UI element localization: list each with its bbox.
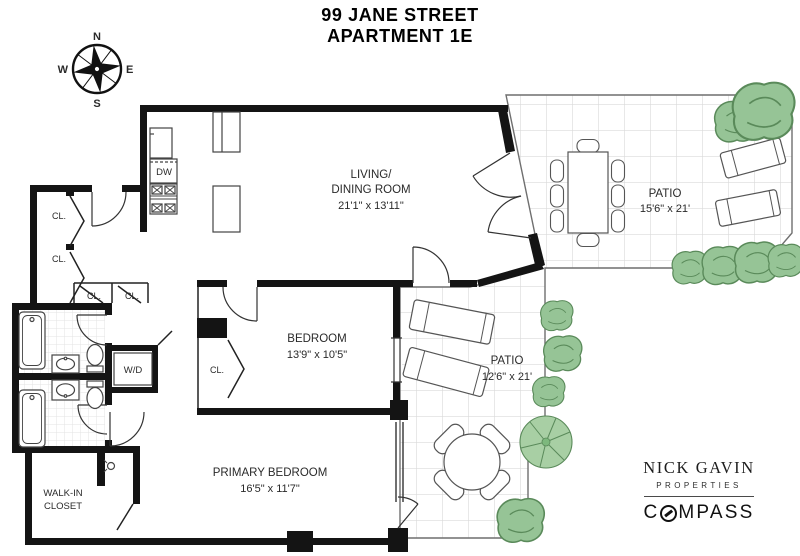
patio-lower-door <box>413 247 449 283</box>
toilet-2 <box>87 381 103 409</box>
compass-n-label: N <box>93 31 101 43</box>
closet-bifold-2 <box>70 252 84 303</box>
agent-subtitle: PROPERTIES <box>638 481 760 490</box>
primary-bedroom-dims: 16'5" x 11'7" <box>240 483 300 495</box>
round-table <box>444 434 500 490</box>
bedroom-closet-bifold <box>228 340 244 398</box>
living-room-dims: 21'1" x 13'11" <box>338 200 404 212</box>
plant <box>533 377 565 407</box>
dishwasher-label: DW <box>156 167 172 178</box>
living-room-label-1: LIVING/ <box>351 169 393 181</box>
french-door-leaf-2 <box>488 196 531 238</box>
patio-upper-dims: 15'6" x 21' <box>640 203 690 215</box>
toilet-1 <box>87 345 103 373</box>
living-room-label-2: DINING ROOM <box>331 184 410 196</box>
primary-bedroom-door <box>110 412 144 446</box>
range-stove <box>150 184 177 214</box>
walk-in-closet-door <box>117 504 133 530</box>
closet-label-4: CL. <box>125 291 139 301</box>
plant <box>541 301 573 331</box>
bedroom-dims: 13'9" x 10'5" <box>287 349 347 361</box>
dining-table <box>568 152 608 233</box>
compass-wordmark-rest: MPASS <box>678 502 754 524</box>
french-door-leaf-1 <box>473 153 521 197</box>
agent-name: NICK GAVIN <box>638 458 760 478</box>
compass-rose-icon: N S W E <box>58 31 134 110</box>
leafy-plant <box>520 416 572 468</box>
bathtub-2 <box>19 390 45 447</box>
closet-label-1: CL. <box>52 211 66 221</box>
bathtub-1 <box>19 312 45 369</box>
wall-fixture <box>104 460 115 472</box>
patio-lower-dims: 12'6" x 21' <box>482 371 532 383</box>
compass-e-label: E <box>126 64 133 76</box>
walk-in-closet-label-1: WALK-IN <box>43 488 82 499</box>
sink-vanity-1 <box>52 355 79 373</box>
closet-bifold-1 <box>70 196 84 246</box>
bedroom-door <box>223 287 257 321</box>
closet-label-5: CL. <box>210 365 224 375</box>
walk-in-closet-label-2: CLOSET <box>44 501 82 512</box>
compass-wordmark-c: C <box>643 502 659 524</box>
washer-dryer-label: W/D <box>124 365 143 376</box>
compass-o-icon <box>660 505 677 522</box>
compass-wordmark: C MPASS <box>638 502 760 524</box>
plant <box>544 336 582 371</box>
brokerage-logo: NICK GAVIN PROPERTIES C MPASS <box>638 458 760 524</box>
plant <box>497 499 544 543</box>
compass-s-label: S <box>93 98 100 110</box>
bistro-table-set <box>431 421 512 502</box>
primary-bedroom-label: PRIMARY BEDROOM <box>213 467 328 479</box>
patio-upper-label: PATIO <box>649 188 682 200</box>
bedroom-label: BEDROOM <box>287 333 346 345</box>
closet-label-2: CL. <box>52 254 66 264</box>
plant <box>768 244 800 277</box>
plant <box>733 83 795 140</box>
kitchen-upper-cabinet <box>213 112 240 152</box>
sink-vanity-2 <box>52 380 79 400</box>
kitchen-counter <box>213 186 240 232</box>
compass-w-label: W <box>58 64 69 76</box>
logo-divider <box>644 496 754 497</box>
refrigerator <box>150 128 172 158</box>
wd-closet-door <box>158 331 172 345</box>
patio-lower-label: PATIO <box>491 355 524 367</box>
floor-plan-page: 99 JANE STREET APARTMENT 1E <box>0 0 800 556</box>
plant <box>672 251 707 284</box>
entry-door <box>92 192 126 226</box>
closet-label-3: CL. <box>87 291 101 301</box>
